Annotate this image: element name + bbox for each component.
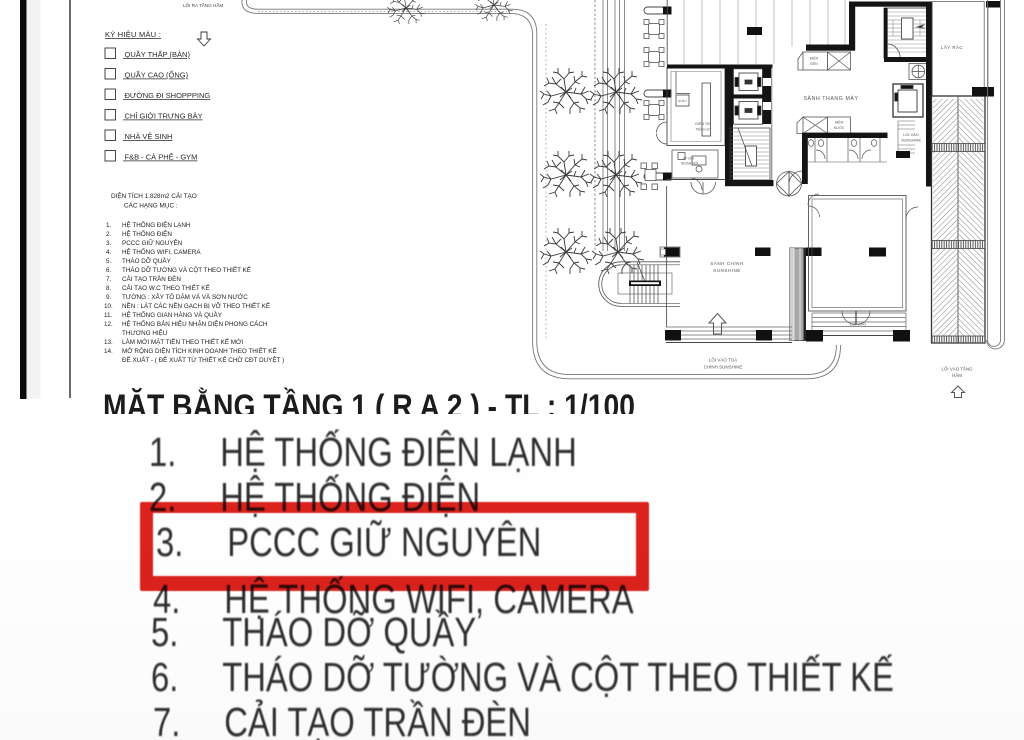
svg-text:LỐI VÀO TOÀ: LỐI VÀO TOÀ (709, 357, 737, 363)
svg-text:12.: 12. (104, 321, 113, 328)
svg-text:SẢNH THANG MÁY: SẢNH THANG MÁY (804, 95, 859, 102)
svg-text:LẤY RÁC: LẤY RÁC (941, 45, 963, 50)
svg-text:LỐI VÀO: LỐI VÀO (903, 132, 919, 137)
svg-text:THƯƠNG HIỆU: THƯƠNG HIỆU (122, 328, 168, 337)
svg-text:KÝ HIỆU MÀU :: KÝ HIỆU MÀU : (105, 30, 161, 39)
svg-text:ĐƯỜNG ĐI SHOPPPING: ĐƯỜNG ĐI SHOPPPING (123, 91, 210, 100)
svg-text:2.: 2. (106, 231, 112, 238)
svg-text:13.: 13. (104, 339, 113, 346)
svg-text:PCCC GIỮ NGUYÊN: PCCC GIỮ NGUYÊN (122, 238, 183, 247)
svg-text:CHÍNH SUNSHINE: CHÍNH SUNSHINE (704, 364, 743, 370)
svg-text:CÁC HẠNG MỤC :: CÁC HẠNG MỤC : (124, 200, 178, 209)
svg-text:QUẦY: QUẦY (678, 99, 687, 103)
svg-text:TIỆN LỢI: TIỆN LỢI (695, 127, 710, 132)
svg-text:LỐI VÀO: LỐI VÀO (850, 322, 866, 327)
svg-text:ĐIỆN TIN: ĐIỆN TIN (695, 121, 711, 126)
svg-text:NƯỚC: NƯỚC (834, 125, 845, 130)
svg-text:8.: 8. (106, 285, 112, 292)
svg-text:5.: 5. (106, 258, 112, 265)
svg-text:CHỈ GIỚI TRƯNG BÀY: CHỈ GIỚI TRƯNG BÀY (123, 112, 203, 121)
svg-text:10.: 10. (104, 303, 113, 310)
svg-text:14.: 14. (104, 348, 113, 355)
svg-text:HẦM: HẦM (952, 373, 962, 378)
svg-text:SẢNH CHÍNH: SẢNH CHÍNH (710, 260, 744, 266)
svg-text:NHÀ VỆ SINH: NHÀ VỆ SINH (123, 132, 172, 141)
svg-text:6.: 6. (106, 267, 112, 274)
svg-text:9.: 9. (106, 294, 112, 301)
svg-text:ĐÈN: ĐÈN (810, 61, 818, 66)
svg-text:4.: 4. (106, 249, 112, 256)
svg-text:ĐIỆN: ĐIỆN (810, 56, 819, 61)
svg-text:VP GÓI: VP GÓI (683, 156, 694, 161)
svg-text:7.: 7. (106, 276, 112, 283)
svg-text:NGOẠI HỐI: NGOẠI HỐI (681, 161, 698, 166)
svg-text:QUẦY THẤP (BÀN): QUẦY THẤP (BÀN) (123, 49, 190, 59)
svg-text:LỐI VÀO TẦNG: LỐI VÀO TẦNG (942, 367, 973, 372)
svg-text:11.: 11. (104, 312, 113, 319)
svg-text:DIỆN TÍCH 1.828m2 CẢI TẠO: DIỆN TÍCH 1.828m2 CẢI TẠO (111, 191, 197, 200)
svg-text:QUẦY CAO (ỐNG): QUẦY CAO (ỐNG) (123, 70, 189, 80)
svg-text:MẶT BẰNG TẦNG 1 ( R A 2 ) -: MẶT BẰNG TẦNG 1 ( R A 2 ) - TL : 1/100 (103, 388, 635, 415)
svg-text:LỐI RA TẦNG HẦM: LỐI RA TẦNG HẦM (183, 2, 223, 8)
svg-text:F&B - CÀ PHÊ - GYM: F&B - CÀ PHÊ - GYM (123, 153, 197, 162)
svg-text:3.: 3. (106, 240, 112, 247)
svg-text:SUNSHINE: SUNSHINE (713, 268, 741, 273)
svg-text:SUNSHINE: SUNSHINE (901, 138, 922, 143)
svg-text:TƯỜNG : XÂY TÔ DẶM VÁ VÀ SƠN N: TƯỜNG : XÂY TÔ DẶM VÁ VÀ SƠN NƯỚC (122, 292, 248, 301)
svg-text:ĐIỆN: ĐIỆN (835, 120, 844, 125)
svg-text:1.: 1. (106, 222, 112, 229)
